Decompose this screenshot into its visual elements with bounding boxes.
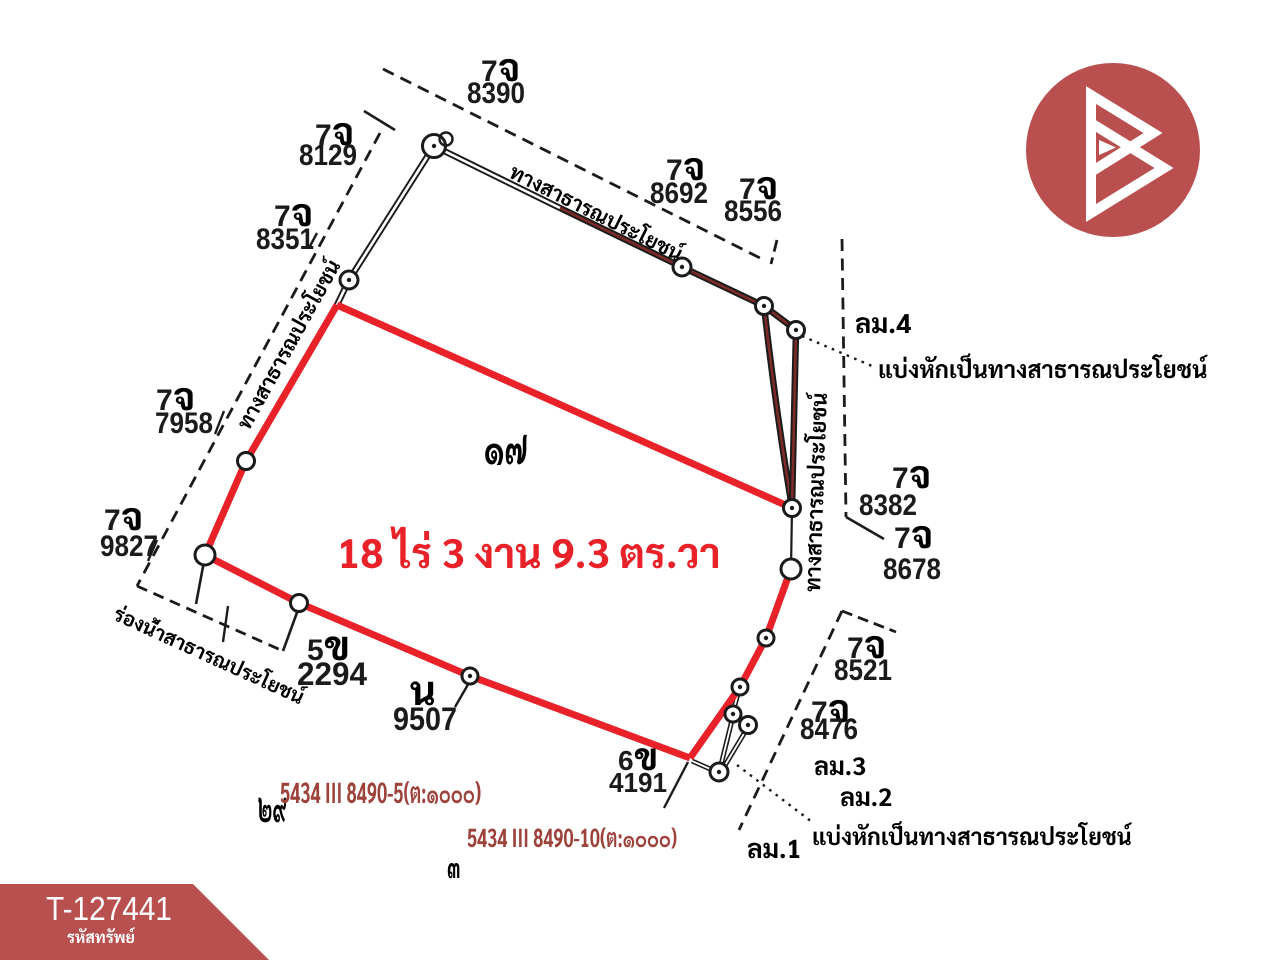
svg-text:8129: 8129 (299, 139, 357, 172)
svg-text:7958: 7958 (155, 407, 213, 440)
svg-text:8556: 8556 (724, 195, 782, 228)
svg-text:8382: 8382 (859, 489, 917, 522)
svg-text:8678: 8678 (883, 553, 941, 586)
svg-text:8476: 8476 (800, 713, 858, 746)
svg-text:8390: 8390 (467, 77, 525, 110)
svg-text:4191: 4191 (609, 767, 667, 798)
svg-text:8521: 8521 (834, 654, 892, 687)
svg-text:8692: 8692 (650, 177, 708, 210)
svg-text:8351: 8351 (256, 223, 314, 256)
svg-text:9507: 9507 (393, 701, 457, 737)
svg-text:9827: 9827 (100, 530, 158, 563)
svg-text:7: 7 (894, 522, 911, 555)
svg-text:T-127441: T-127441 (46, 890, 172, 927)
